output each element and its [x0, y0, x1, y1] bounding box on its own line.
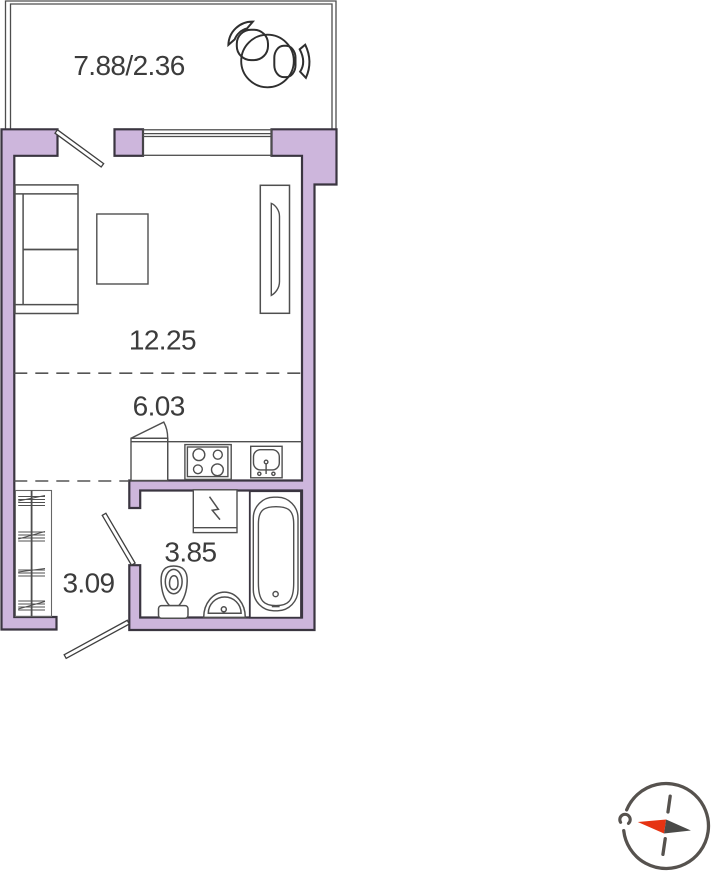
svg-text:7.88/2.36: 7.88/2.36: [73, 50, 184, 81]
svg-text:3.85: 3.85: [164, 537, 216, 568]
svg-text:3.09: 3.09: [62, 568, 114, 599]
svg-text:6.03: 6.03: [133, 391, 185, 422]
svg-text:12.25: 12.25: [129, 325, 196, 356]
